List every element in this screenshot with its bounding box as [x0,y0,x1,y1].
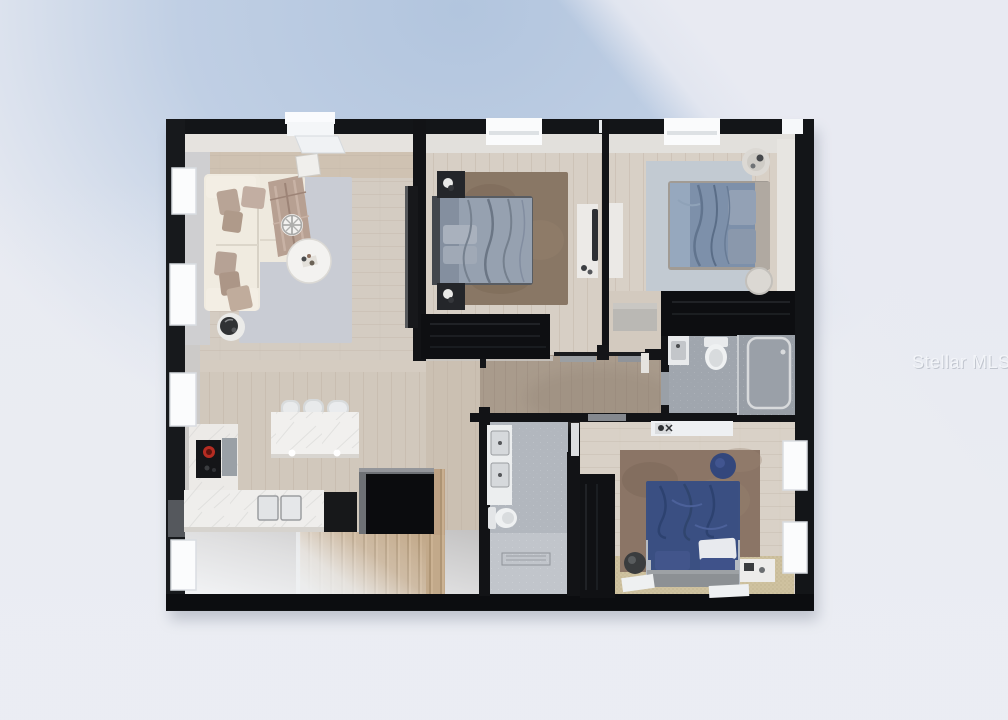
svg-text:Stellar MLS: Stellar MLS [912,352,1008,372]
